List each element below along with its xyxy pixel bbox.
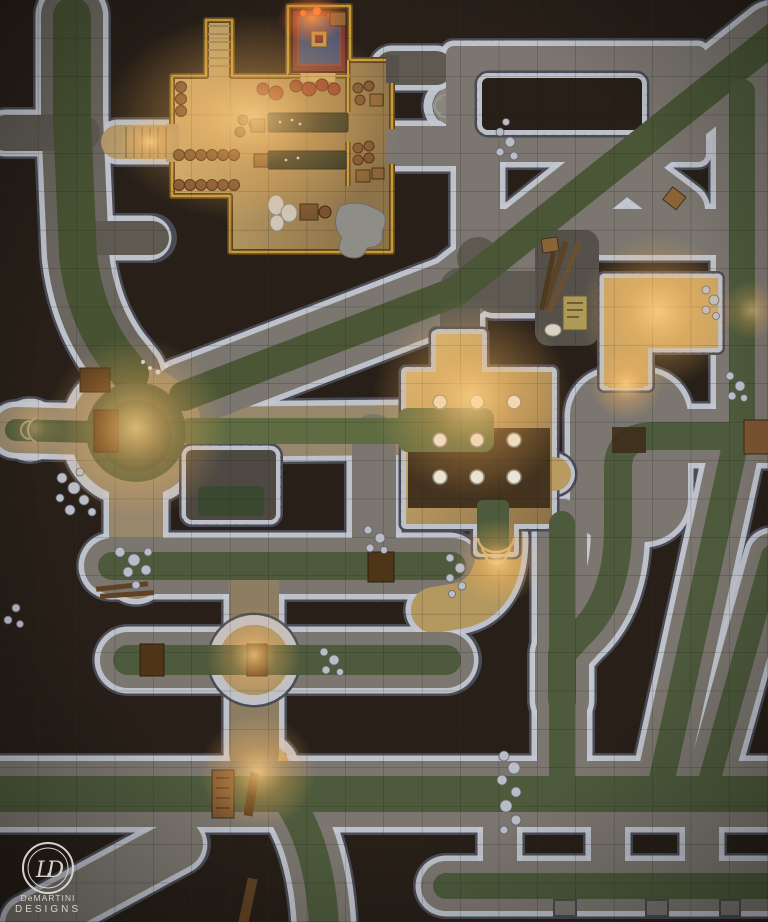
logo-monogram: LD [35,858,65,883]
map-canvas: LD DeMARTINI DESIGNS [0,0,768,922]
logo-name-line2: DESIGNS [15,904,81,915]
logo-name-line1: DeMARTINI [21,893,76,903]
vignette [0,0,768,922]
battle-map: LD DeMARTINI DESIGNS [0,0,768,922]
